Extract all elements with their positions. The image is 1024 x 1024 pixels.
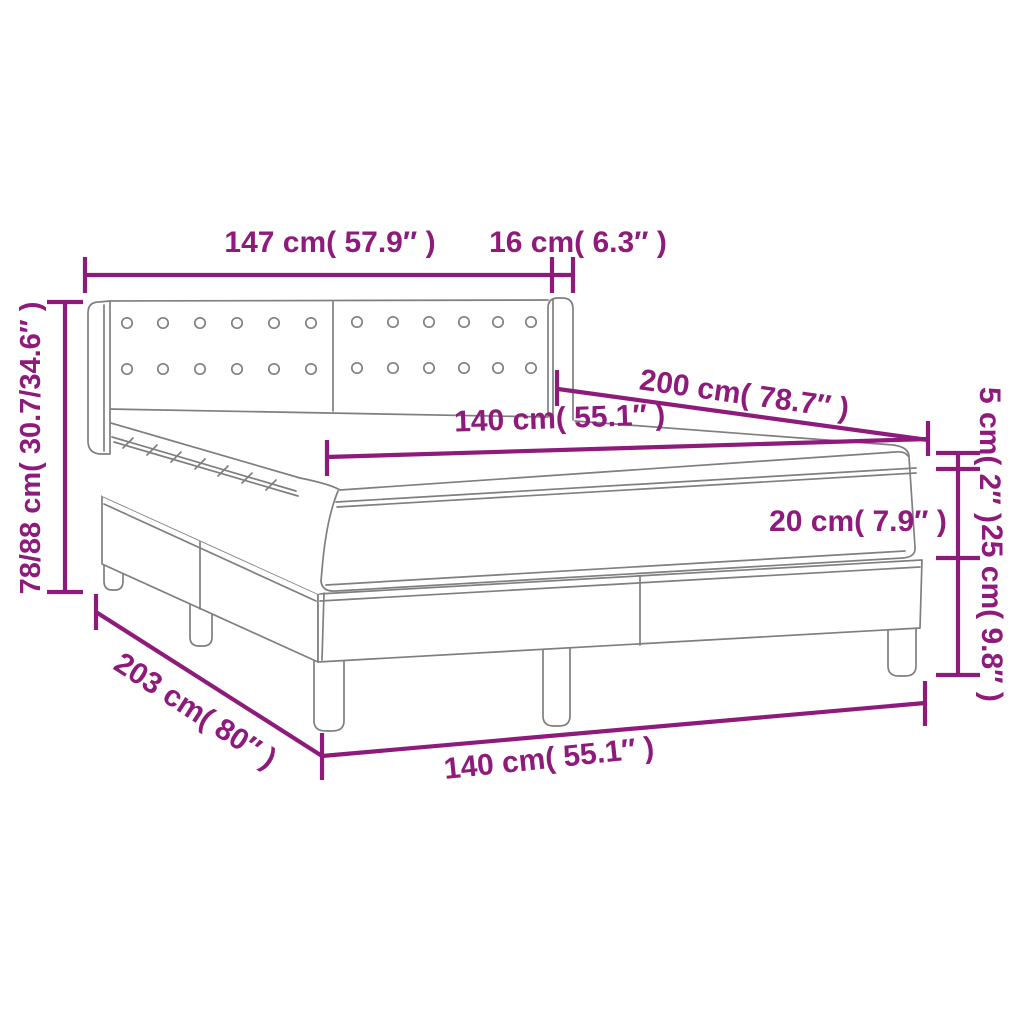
label-mattress-height: 20 cm( 7.9″ ) [769, 505, 947, 538]
diagram-canvas: 147 cm( 57.9″ ) 16 cm( 6.3″ ) 78/88 cm( … [0, 0, 1024, 1024]
label-topper-height: 5 cm( 2″ ) [973, 387, 1006, 523]
dim-total-height [47, 302, 83, 592]
bed-dimension-diagram: 147 cm( 57.9″ ) 16 cm( 6.3″ ) 78/88 cm( … [0, 0, 1024, 1024]
label-base-height: 25 cm( 9.8″ ) [975, 524, 1008, 702]
label-wing-width: 16 cm( 6.3″ ) [489, 226, 667, 259]
label-base-width: 140 cm( 55.1″ ) [442, 731, 655, 786]
label-headboard-width: 147 cm( 57.9″ ) [224, 226, 435, 259]
label-total-height: 78/88 cm( 30.7/34.6″ ) [15, 302, 47, 595]
headboard-left-wing [88, 301, 110, 454]
dim-headboard-width [85, 257, 573, 293]
label-base-length: 203 cm( 80″ ) [108, 647, 282, 776]
